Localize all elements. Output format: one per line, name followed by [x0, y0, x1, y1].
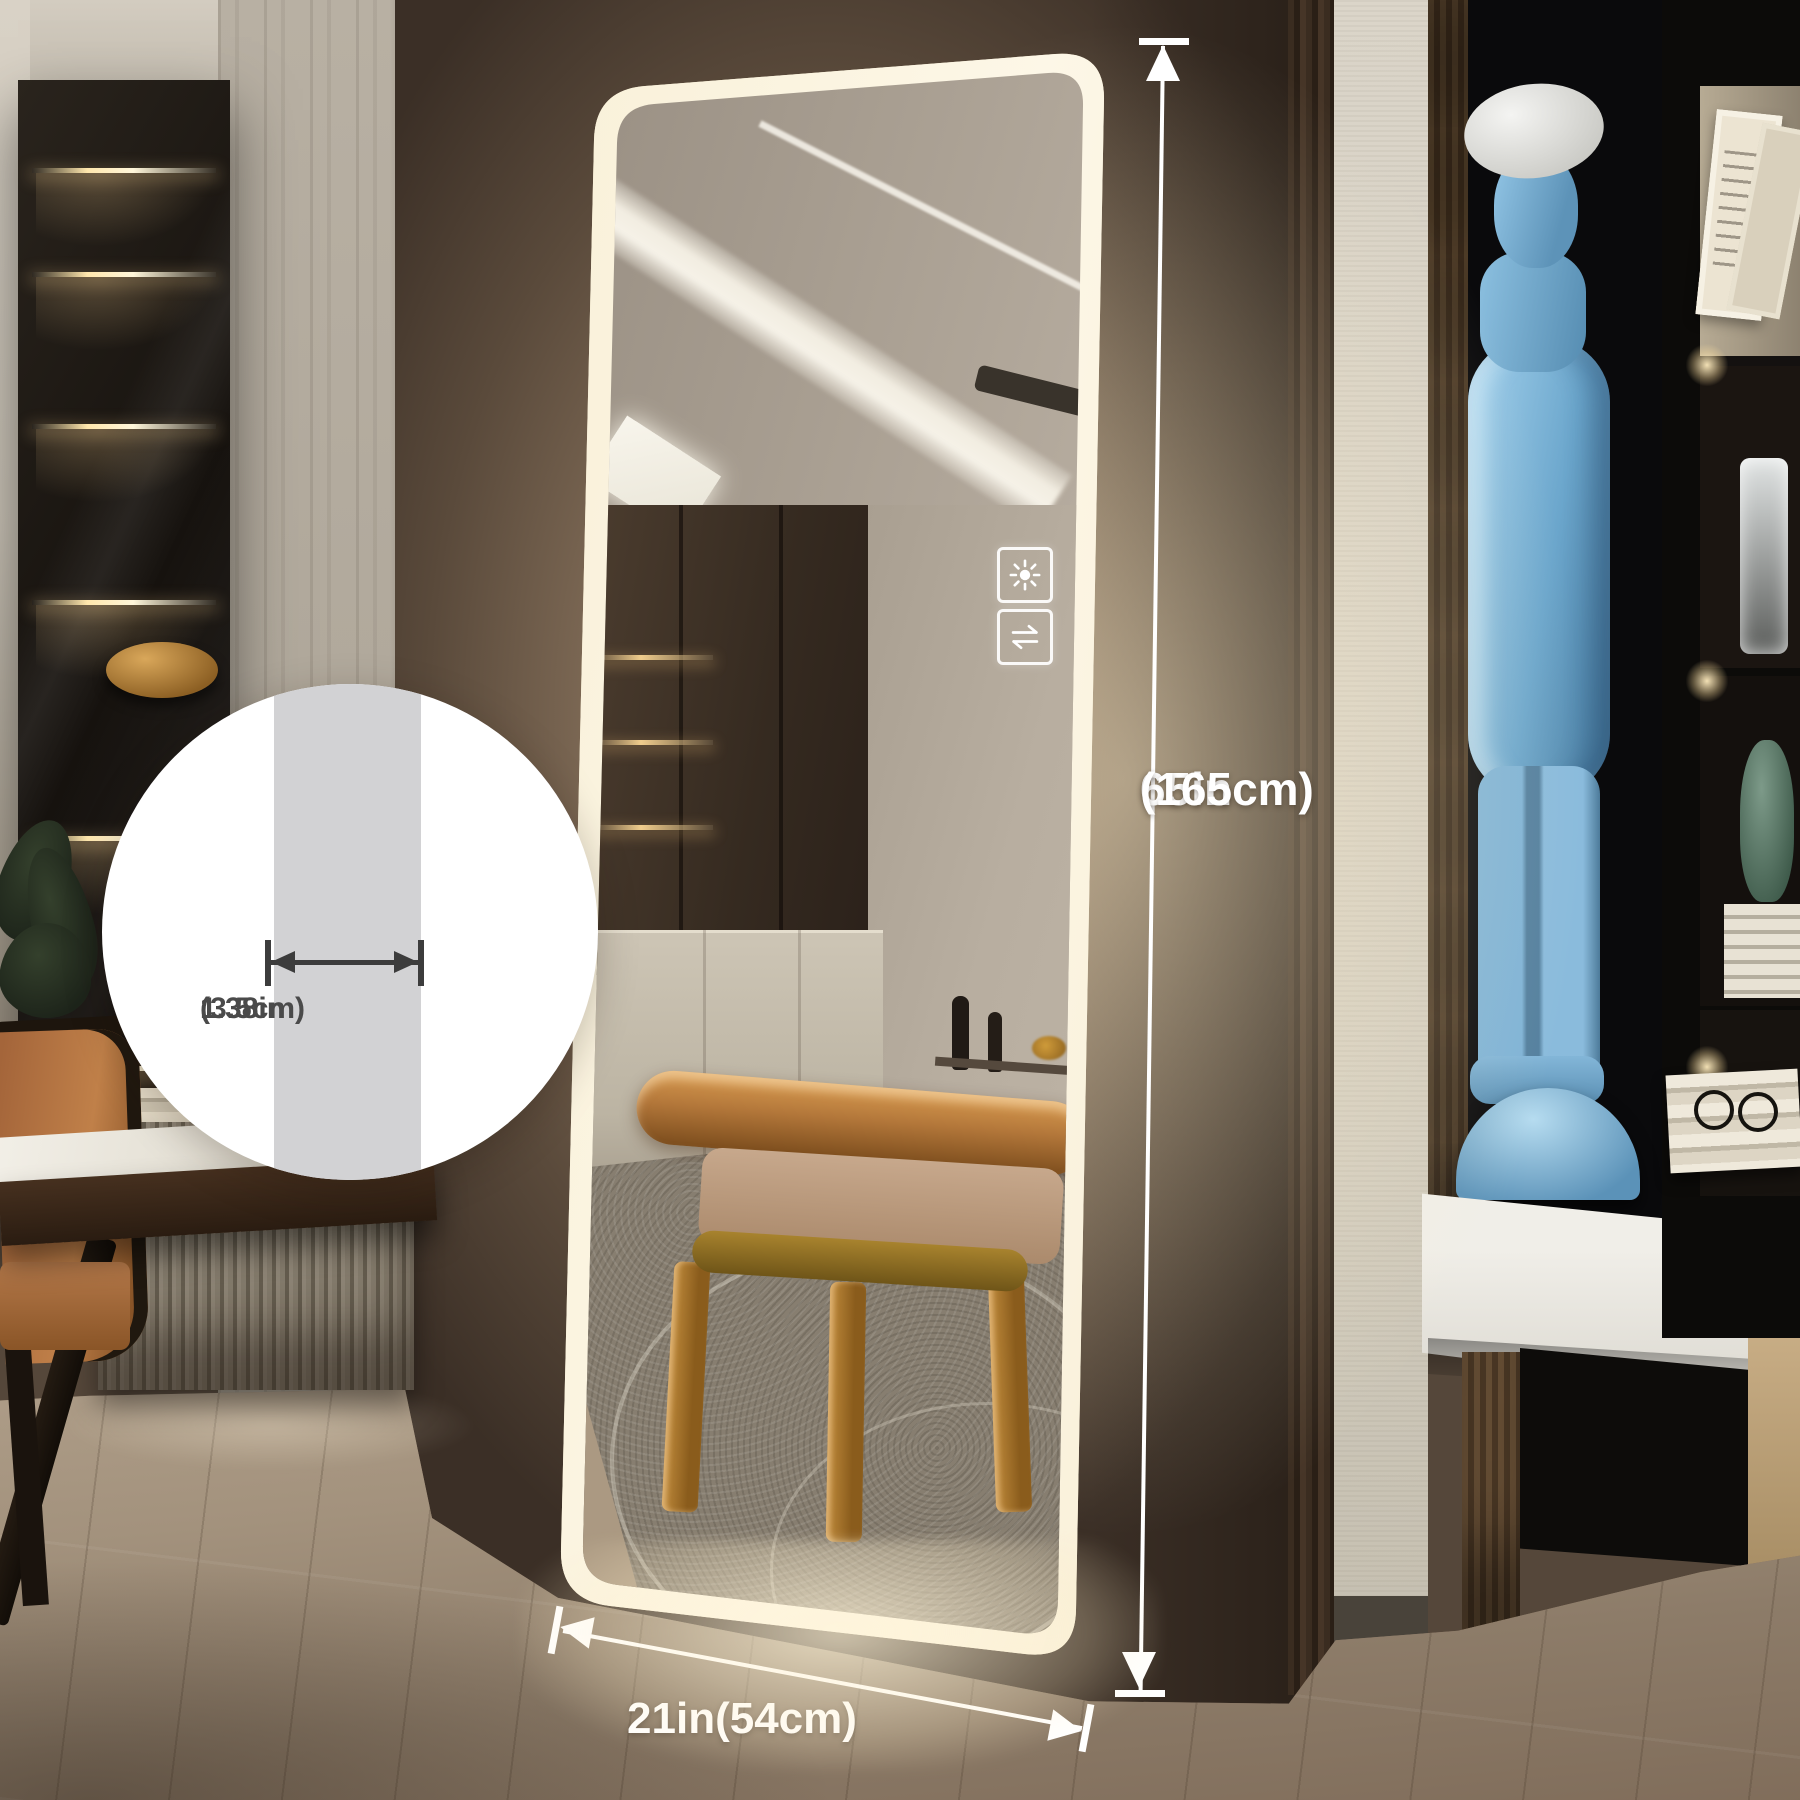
arrow-right-icon — [394, 951, 418, 973]
wardrobe-shelf-light — [593, 740, 713, 745]
leather-chair-seat — [0, 1262, 130, 1350]
wardrobe-shelf-light — [593, 825, 713, 830]
arrow-left-icon — [271, 951, 295, 973]
bench-leg — [826, 1282, 867, 1543]
shelf-light-pool — [36, 429, 216, 503]
cabinet-seam — [703, 930, 706, 1192]
shelf-light-pool — [36, 277, 216, 351]
arrow-up-icon — [1146, 45, 1180, 81]
wardrobe-shelf-light — [593, 655, 713, 660]
product-photo-led-mirror: 65in (165cm) 21in(54cm) 1.38in (3.5cm) — [0, 0, 1800, 1800]
height-value-cm: (165cm) — [1140, 762, 1314, 816]
swap-arrows-icon — [1008, 620, 1042, 654]
frame-width-inset-circle: 1.38in (3.5cm) — [102, 684, 598, 1180]
inset-cap-right — [418, 940, 424, 986]
gold-flower-decor — [1032, 1036, 1066, 1060]
shelf-light-pool — [36, 173, 216, 247]
light-switch-touch-button — [997, 609, 1053, 665]
gold-bowl-decor — [106, 642, 218, 698]
frame-cross-section — [274, 684, 421, 1180]
wardrobe-divider — [779, 505, 783, 975]
sun-icon — [1008, 558, 1042, 592]
mirror-floor-glow — [520, 1540, 1160, 1770]
frame-width-cm: (3.5cm) — [200, 990, 305, 1027]
reflected-wardrobe — [583, 505, 873, 975]
brightness-touch-button — [997, 547, 1053, 603]
dimension-cap-top — [1139, 38, 1189, 45]
